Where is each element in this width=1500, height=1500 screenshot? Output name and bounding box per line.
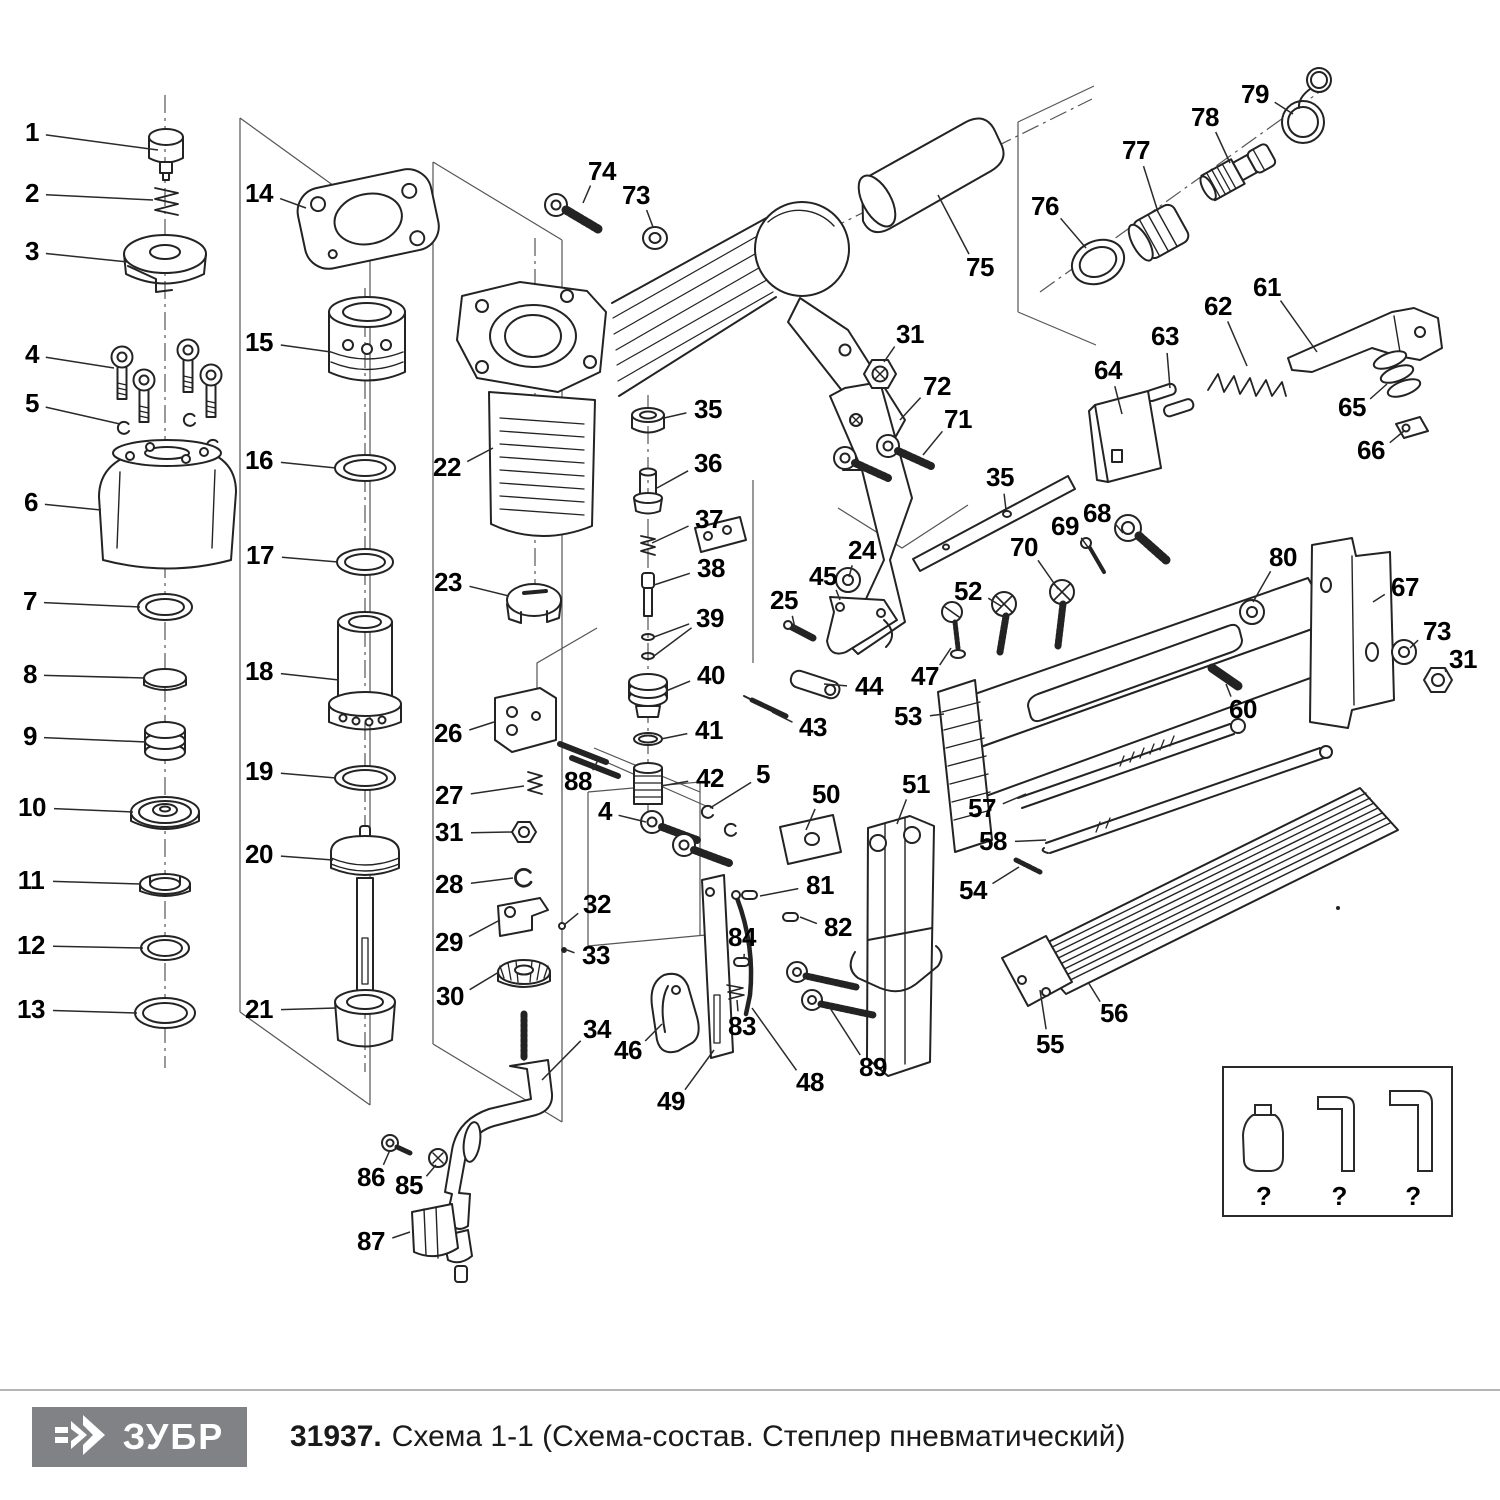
part-7-o-ring — [138, 594, 192, 620]
part-89-bolts — [787, 962, 873, 1015]
part-29-bracket — [498, 898, 548, 936]
part-78-air-fitting — [1197, 141, 1278, 203]
part-85-nut — [429, 1149, 447, 1167]
part-34-arm — [443, 1014, 552, 1282]
footer-divider — [0, 1389, 1500, 1391]
part-8-disc — [144, 669, 186, 690]
part-2-spring — [155, 188, 178, 215]
part-30-gear — [498, 960, 550, 987]
part-62-spring — [1208, 374, 1286, 396]
part-73b-washer — [1392, 640, 1416, 664]
part-47-screw — [942, 602, 965, 658]
part-64-plate — [1089, 391, 1161, 482]
oil-bottle-icon — [1237, 1103, 1291, 1179]
part-27-spring — [528, 772, 542, 794]
part-86-bolt — [382, 1135, 410, 1153]
unknown-part-hex-key-large: ? — [1388, 1089, 1438, 1209]
part-88-pins — [560, 744, 618, 776]
part-49-plate — [702, 875, 733, 1058]
part-41-o-ring — [634, 733, 662, 745]
part-31c-nut — [1424, 668, 1452, 692]
part-84-pin — [734, 958, 749, 966]
unknown-part-label: ? — [1256, 1183, 1272, 1209]
part-12-o-ring — [141, 936, 189, 960]
part-82-pin — [783, 913, 798, 921]
part-73-washer — [643, 227, 667, 249]
part-66-plate — [1396, 417, 1428, 438]
part-26-block — [495, 688, 556, 752]
part-19-o-ring — [335, 766, 395, 790]
part-52-screw — [992, 592, 1016, 652]
part-23-deflector — [507, 584, 561, 623]
document-number: 31937. — [290, 1420, 382, 1454]
part-4b-bolts — [641, 811, 729, 863]
part-6-top-cap — [99, 440, 236, 569]
zubr-logo-icon — [55, 1415, 117, 1459]
zubr-logo: ЗУБР — [32, 1407, 247, 1467]
part-61-lever — [1288, 308, 1442, 372]
part-87-pad — [412, 1204, 458, 1258]
part-38-valve-stem — [642, 573, 654, 616]
stray-dot — [1336, 906, 1340, 910]
unknown-part-oil: ? — [1237, 1103, 1291, 1209]
part-33-pin — [562, 948, 566, 952]
part-10-piston-wheel — [131, 797, 199, 829]
footer-bar: ЗУБР 31937. Схема 1-1 (Схема-состав. Сте… — [0, 1392, 1500, 1500]
part-14-gasket — [293, 165, 443, 273]
part-4-bolts — [112, 340, 222, 423]
part-9-ring-stack — [145, 722, 185, 760]
part-81-pin — [742, 891, 757, 899]
part-56-lower-rail — [1002, 788, 1398, 1006]
part-32-pin — [559, 923, 565, 929]
part-74-bolt — [545, 194, 598, 229]
part-31a-nut — [512, 822, 536, 842]
part-17-o-ring — [337, 549, 393, 575]
unknown-part-hex-key-small: ? — [1316, 1095, 1362, 1209]
part-1-trigger-valve-cap — [149, 129, 183, 180]
part-37-spring — [641, 536, 655, 555]
part-46-trigger — [652, 974, 699, 1052]
part-15-guide-cylinder — [329, 297, 405, 381]
part-80-washer — [1240, 600, 1264, 624]
part-3-cap-ring — [124, 235, 206, 292]
part-16-o-ring — [335, 455, 395, 481]
part-51-nose-assembly — [851, 816, 942, 1076]
part-5b-washers — [702, 806, 736, 836]
part-11-slotted-ring — [140, 874, 190, 896]
hex-key-large-icon — [1388, 1089, 1438, 1179]
part-35b-rail — [913, 476, 1075, 571]
part-22-body-housing — [457, 202, 905, 536]
part-76-o-ring — [1065, 232, 1132, 293]
part-13-o-ring — [135, 998, 195, 1028]
part-42-plug — [634, 763, 662, 804]
rear-mount-bracket — [695, 517, 746, 552]
part-71-bolts — [834, 435, 931, 478]
part-25-pin — [784, 621, 813, 638]
unknown-part-label: ? — [1405, 1183, 1421, 1209]
part-31-nut — [864, 360, 896, 388]
part-79-dust-cap — [1282, 68, 1331, 143]
document-title: 31937. Схема 1-1 (Схема-состав. Степлер … — [290, 1392, 1126, 1482]
unknown-part-label: ? — [1332, 1183, 1348, 1209]
part-20-piston-driver — [331, 826, 399, 994]
part-70-screw — [1050, 580, 1074, 646]
part-54-pin — [1016, 860, 1040, 872]
part-40-gland — [629, 674, 667, 717]
unknown-parts-box: ? ? ? — [1222, 1066, 1453, 1217]
hex-key-small-icon — [1316, 1095, 1362, 1179]
part-28-washer — [515, 869, 531, 886]
part-50-block — [780, 815, 841, 864]
exploded-parts-drawing — [0, 0, 1500, 1500]
part-43-pin — [744, 696, 786, 716]
zubr-logo-text: ЗУБР — [123, 1419, 224, 1455]
part-67-bracket — [1310, 538, 1394, 728]
schematic-page: 1234567891011121314151617181920212223242… — [0, 0, 1500, 1500]
document-title-text: Схема 1-1 (Схема-состав. Степлер пневмат… — [392, 1420, 1126, 1454]
part-75-grip-sleeve — [851, 119, 1003, 233]
part-68-bolt — [1115, 515, 1166, 560]
part-24-washer — [836, 568, 860, 592]
